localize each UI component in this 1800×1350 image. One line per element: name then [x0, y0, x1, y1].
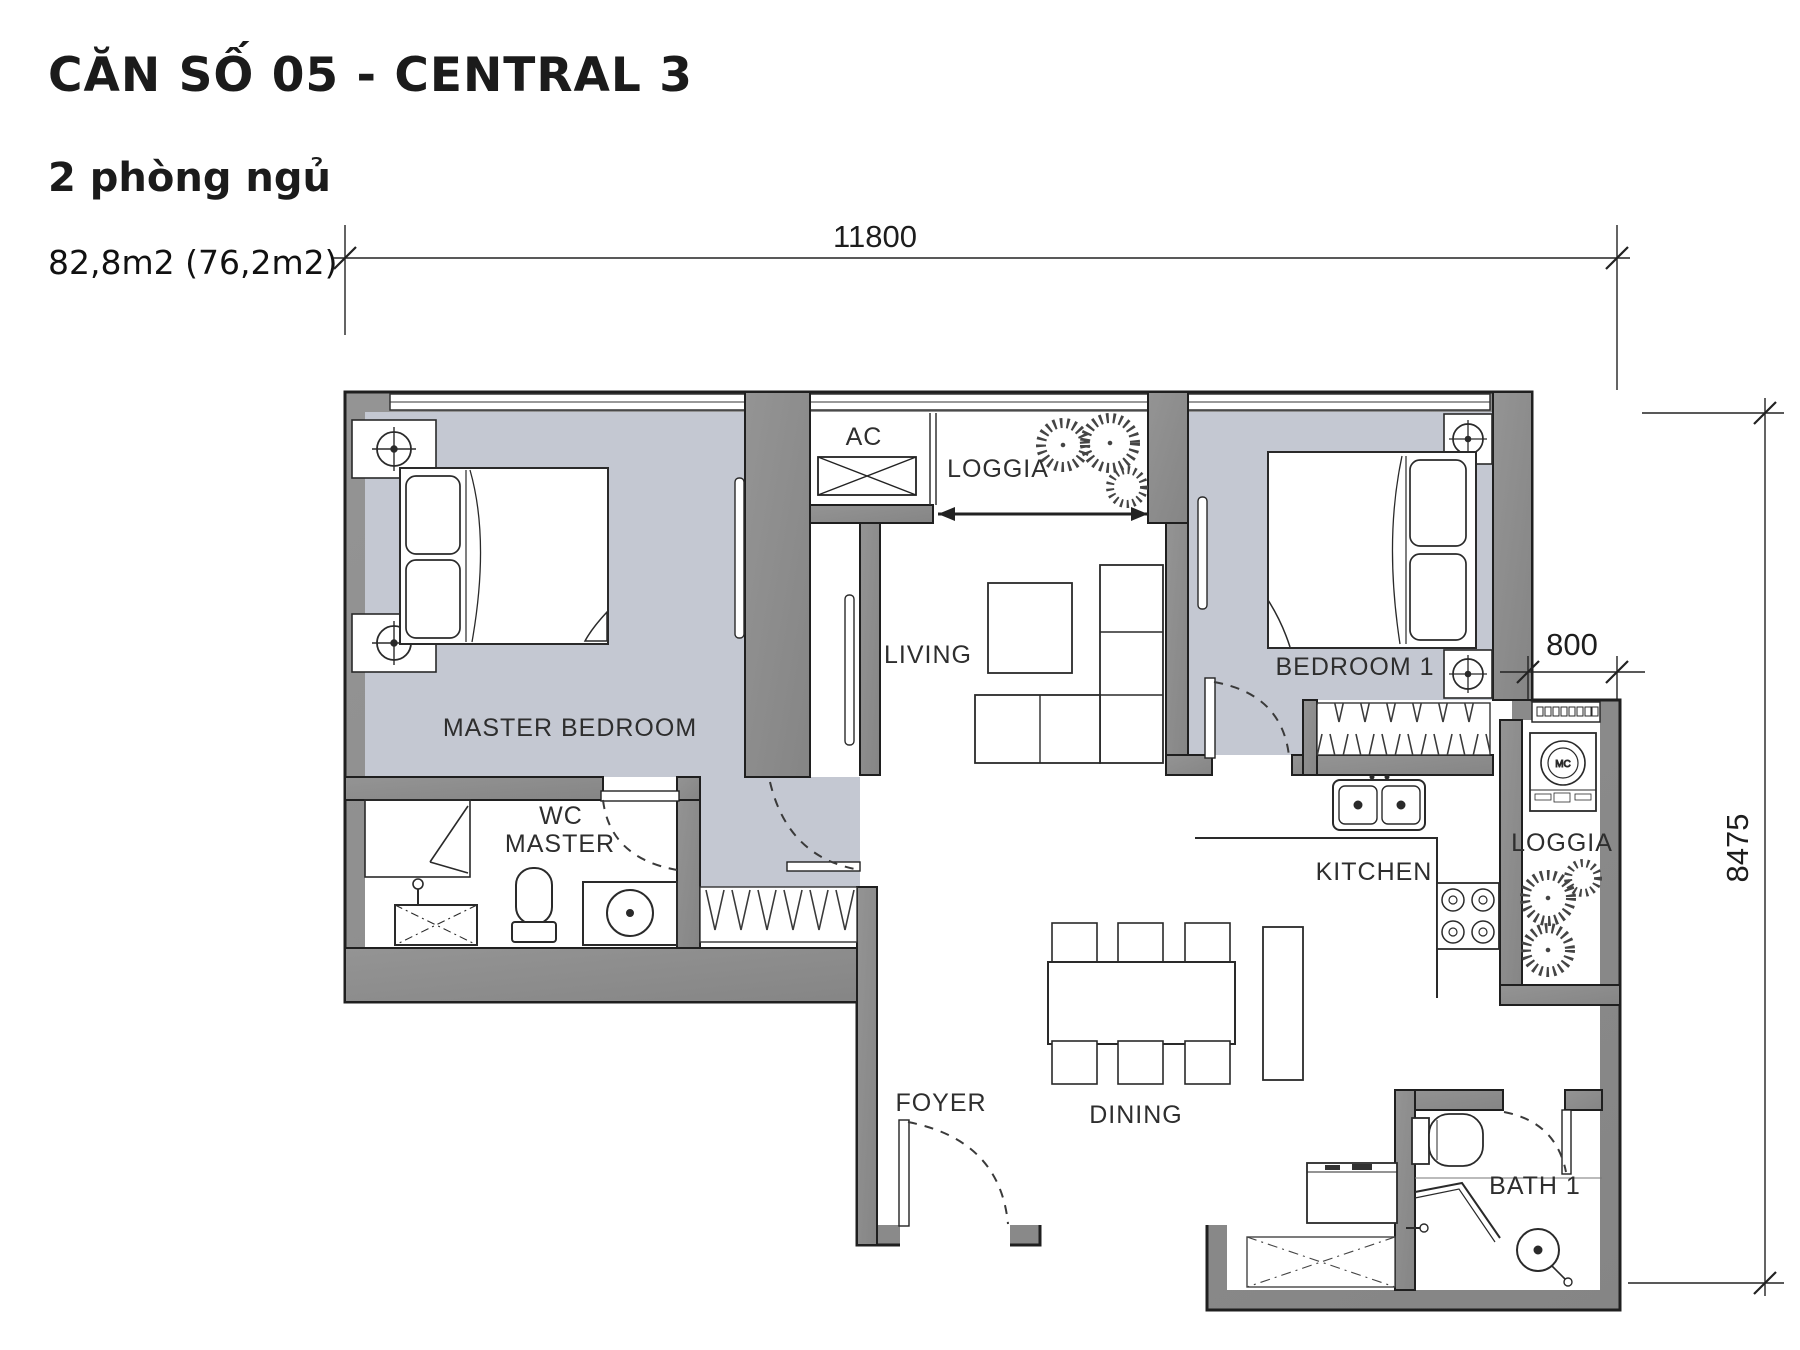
- stove-icon: [1437, 883, 1499, 949]
- label-wc-master-2: MASTER: [505, 830, 615, 858]
- dim-total-height: 8475: [1628, 398, 1784, 1296]
- shower-mixer-icon: [413, 879, 423, 889]
- floorplan-page: CĂN SỐ 05 - CENTRAL 3 2 phòng ngủ 82,8m2…: [0, 0, 1800, 1350]
- label-ac: AC: [846, 423, 883, 451]
- chair-icon: [1118, 923, 1163, 966]
- sofa-icon: [975, 695, 1100, 763]
- chair-icon: [1118, 1041, 1163, 1084]
- pillow-icon: [1410, 554, 1466, 640]
- chair-icon: [1052, 1041, 1097, 1084]
- dim-text-total-width: 11800: [833, 219, 917, 254]
- chair-icon: [1185, 1041, 1230, 1084]
- label-kitchen: KITCHEN: [1316, 858, 1433, 886]
- wall-bedroom1-right: [1493, 392, 1532, 700]
- label-dining: DINING: [1089, 1101, 1183, 1129]
- pillow-icon: [1410, 460, 1466, 546]
- wall-mb-bottom-b: [677, 777, 700, 800]
- wall-bath-top-stub: [1565, 1090, 1602, 1110]
- dim-text-loggia-width: 800: [1546, 627, 1598, 662]
- wall-wardrobe-stub: [1303, 700, 1317, 775]
- corridor-wardrobe: [700, 887, 857, 942]
- kitchen-sink-icon: [1333, 775, 1425, 830]
- label-loggia-right: LOGGIA: [1511, 829, 1613, 857]
- coffee-table: [988, 583, 1072, 673]
- window-bands: [390, 394, 1490, 410]
- label-bath1: BATH 1: [1489, 1172, 1581, 1200]
- wall-ac-bottom: [810, 505, 933, 523]
- wall-loggia-pillar: [1148, 392, 1188, 523]
- wall-mb-bottom-a: [345, 777, 603, 800]
- wall-bedroom1-left: [1166, 523, 1188, 775]
- wall-mb-living: [745, 392, 810, 777]
- bedroom1-wardrobe: [1317, 703, 1490, 755]
- washer-label: MC: [1555, 759, 1571, 770]
- wall-foyer-left: [857, 887, 877, 1245]
- wall-wc-bottom: [345, 948, 877, 1002]
- entry-opening: [900, 1223, 1010, 1247]
- toilet-icon: [516, 868, 552, 924]
- toilet-icon: [1412, 1114, 1483, 1166]
- wall-loggia-right-left: [1500, 720, 1522, 1005]
- dim-total-width: 11800: [333, 219, 1630, 390]
- label-bedroom1: BEDROOM 1: [1275, 653, 1434, 681]
- label-loggia-top: LOGGIA: [947, 455, 1049, 483]
- wall-loggia-right-bottom: [1500, 985, 1620, 1005]
- pillow-icon: [406, 476, 460, 554]
- island-counter: [1263, 927, 1303, 1080]
- chair-icon: [1052, 923, 1097, 966]
- tv-icon: [1198, 497, 1207, 609]
- floor-plan-canvas: MC: [0, 0, 1800, 1350]
- dim-text-total-height: 8475: [1720, 814, 1755, 883]
- pillow-icon: [406, 560, 460, 638]
- label-living: LIVING: [884, 641, 972, 669]
- wall-living-left: [860, 523, 880, 775]
- tv-icon: [735, 478, 744, 638]
- label-master-bedroom: MASTER BEDROOM: [443, 714, 697, 742]
- sofa-icon: [1100, 565, 1163, 763]
- chair-icon: [1185, 923, 1230, 966]
- wall-wc-right: [677, 780, 700, 948]
- washing-machine-icon: MC: [1530, 733, 1596, 811]
- tv-icon: [845, 595, 854, 745]
- label-foyer: FOYER: [895, 1089, 986, 1117]
- label-wc-master-1: WC: [539, 802, 583, 830]
- dining-table: [1048, 962, 1235, 1044]
- wall-wardrobe-bottom: [1317, 755, 1493, 775]
